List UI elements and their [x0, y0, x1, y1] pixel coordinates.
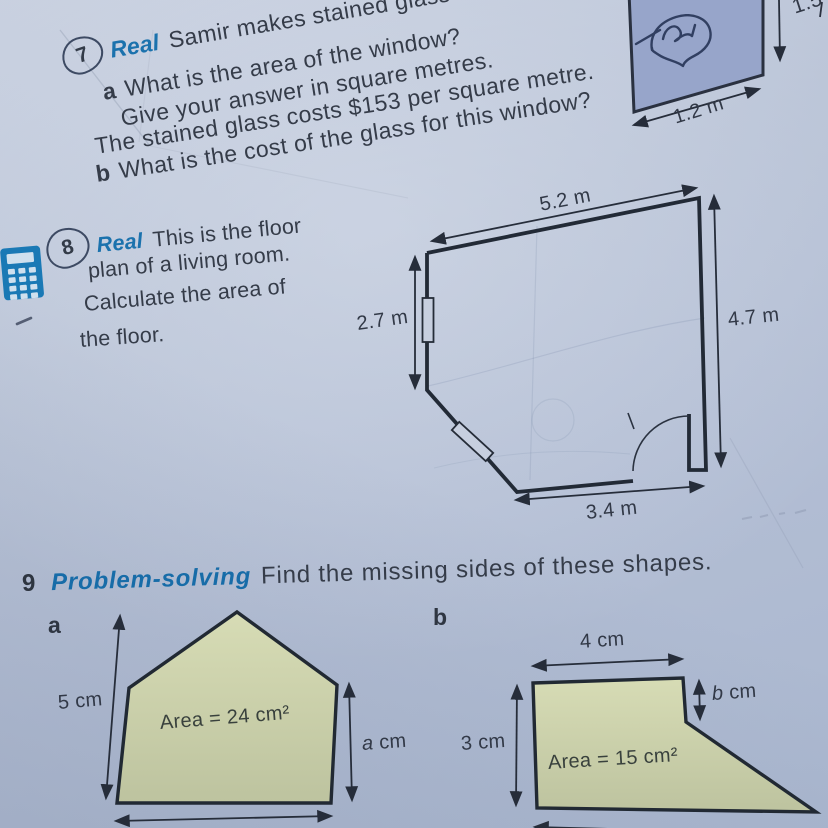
q7-part-a-label: a	[101, 77, 118, 105]
pen-dash-mark	[17, 318, 31, 324]
q8-real-tag: Real	[96, 228, 144, 257]
shape-b-part-label: b	[433, 604, 447, 631]
calculator-icon	[0, 245, 44, 300]
shape-a-right-unit: cm	[373, 730, 408, 754]
q8-line4-text: the floor.	[79, 322, 165, 352]
shape-b-left-arrow	[516, 686, 517, 805]
q9-number: 9	[22, 570, 37, 598]
shape-b-left-label: 3 cm	[460, 730, 506, 756]
floor-plan-diagram	[415, 188, 721, 500]
shape-a-left-label: 5 cm	[57, 688, 103, 715]
shape-b-top-arrow	[533, 659, 682, 666]
shape-a-right-arrow	[349, 684, 352, 800]
floor-plan-walls	[427, 198, 706, 492]
window-symbol-left	[423, 298, 434, 342]
shape-b-right-unit: cm	[723, 680, 758, 704]
dim-arrow-right	[714, 196, 721, 466]
door-leaf-tick	[628, 413, 634, 429]
shape-b-top-label: 4 cm	[579, 628, 625, 654]
shape-a-part-label: a	[48, 612, 61, 639]
window-height-arrow	[779, 0, 780, 60]
q8-circled-number: 8	[42, 223, 95, 273]
q8-number: 8	[59, 235, 77, 261]
shape-b-right-arrow	[699, 681, 700, 719]
window-symbol-diagonal	[452, 422, 493, 461]
stained-glass-window-diagram	[629, 0, 822, 125]
shape-a-right-label: a cm	[361, 730, 407, 756]
q7-part-b-label: b	[94, 159, 112, 187]
shape-a-left-arrow	[106, 616, 120, 798]
shape-b-diagram	[516, 659, 816, 828]
q7-real-tag: Real	[108, 29, 161, 64]
textbook-page-photo: 7 Real Samir makes stained glass window …	[0, 0, 828, 828]
q7-number: 7	[73, 42, 92, 69]
door-swing-arc	[633, 416, 689, 471]
shape-b-right-label: b cm	[711, 680, 757, 706]
shape-a-bottom-arrow	[116, 816, 331, 821]
